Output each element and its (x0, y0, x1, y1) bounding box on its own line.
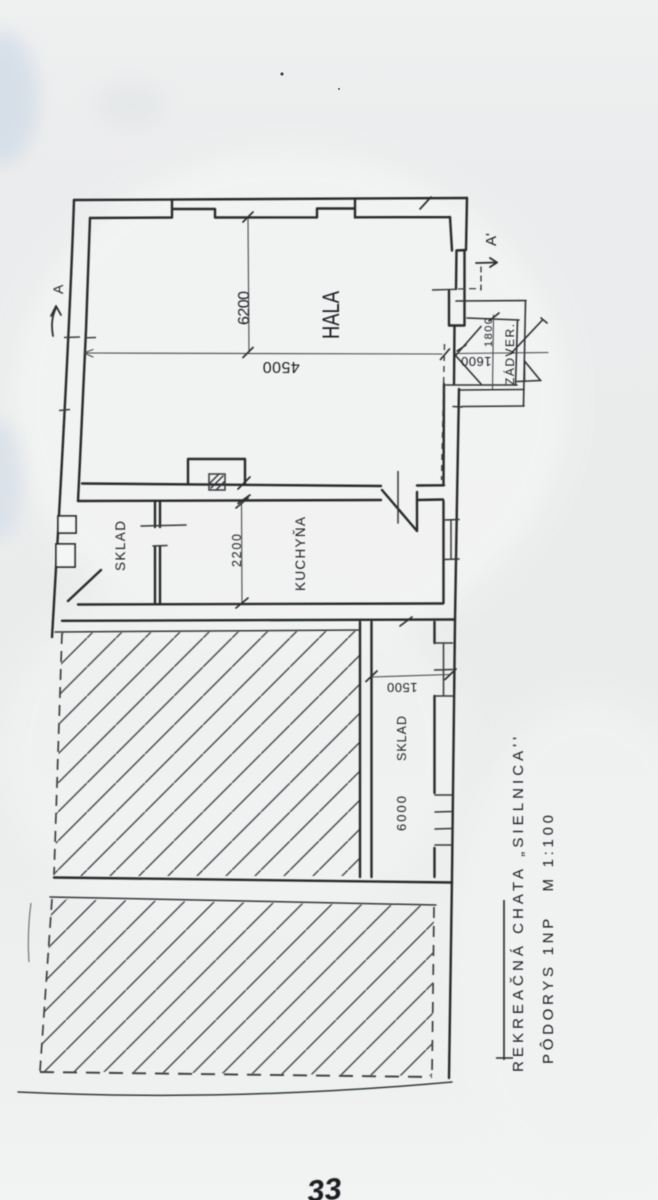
svg-text:1600: 1600 (461, 354, 492, 369)
svg-text:A': A' (483, 233, 500, 246)
svg-text:ZÁDVER.: ZÁDVER. (502, 322, 517, 385)
svg-text:PÔDORYS 1NP M 1:100: PÔDORYS 1NP M 1:100 (540, 815, 557, 1064)
svg-text:1800: 1800 (483, 318, 495, 347)
svg-text:33: 33 (305, 1171, 343, 1200)
svg-text:A: A (50, 284, 66, 294)
svg-text:KUCHYŇA: KUCHYŇA (293, 517, 308, 591)
svg-text:1500: 1500 (387, 680, 418, 695)
svg-text:6200: 6200 (236, 291, 253, 325)
svg-text:4500: 4500 (262, 358, 300, 375)
svg-text:HALA: HALA (318, 291, 345, 339)
svg-text:SKLAD: SKLAD (395, 716, 409, 761)
svg-text:2200: 2200 (230, 534, 244, 567)
svg-text:SKLAD: SKLAD (113, 521, 128, 571)
